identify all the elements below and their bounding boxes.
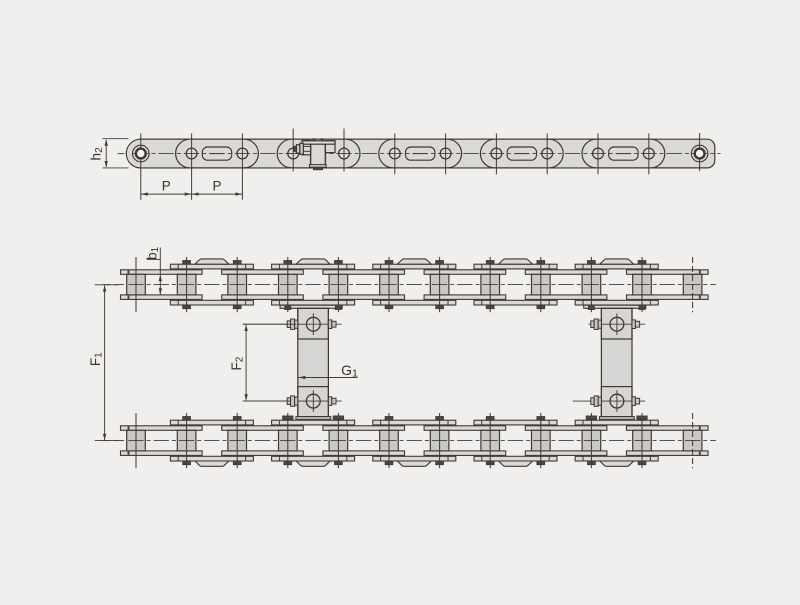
- svg-text:P: P: [212, 179, 221, 194]
- svg-text:P: P: [162, 179, 171, 194]
